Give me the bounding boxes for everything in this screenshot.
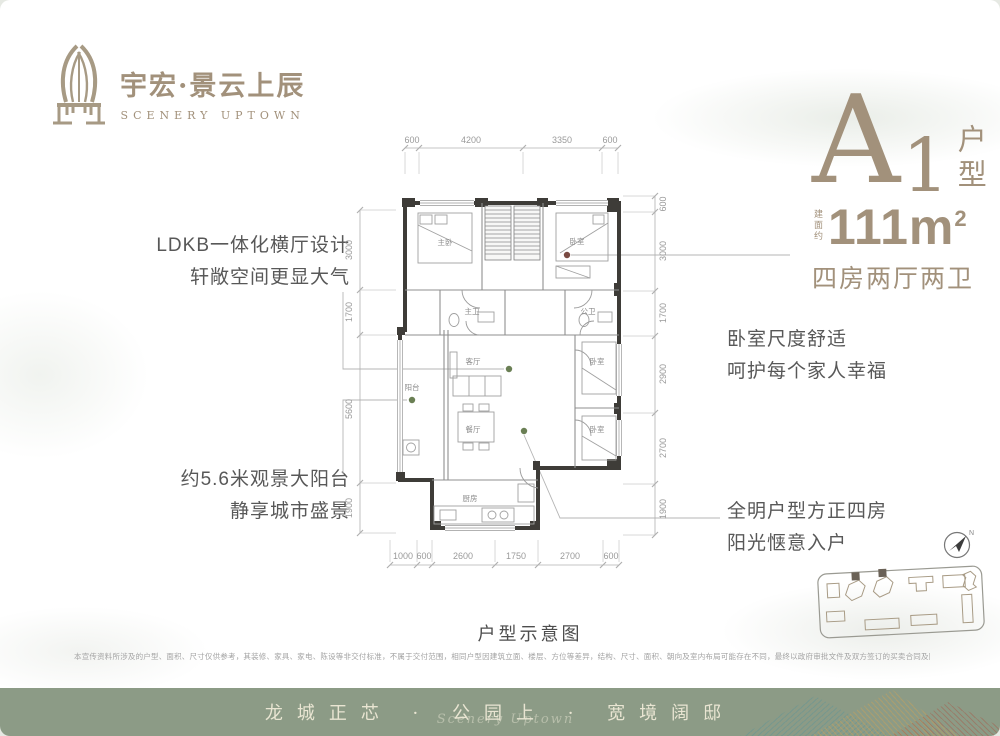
building-icon (50, 42, 108, 128)
svg-text:1750: 1750 (506, 551, 526, 561)
svg-text:3350: 3350 (552, 135, 572, 145)
footer-band: 龙城正芯 · 公园上 · 宽境阔邸 Scenery Uptown (0, 688, 1000, 736)
brand-name: 宇宏·景云上辰 (120, 64, 305, 103)
unit-suffix: 户型 (955, 124, 984, 194)
svg-text:1700: 1700 (658, 303, 668, 323)
unit-number: 1 (902, 136, 949, 197)
brand-subtitle: SCENERY UPTOWN (120, 109, 305, 122)
flyer-page: 宇宏·景云上辰 SCENERY UPTOWN A 1 户型 建面约 111m2 … (0, 0, 1000, 736)
floorplan-caption: 户型示意图 (430, 620, 630, 646)
svg-text:600: 600 (658, 196, 668, 211)
footer-signature: Scenery Uptown (437, 712, 574, 727)
svg-text:2600: 2600 (453, 551, 473, 561)
svg-text:1000: 1000 (393, 551, 413, 561)
svg-text:600: 600 (416, 551, 431, 561)
stair-core (485, 206, 540, 260)
svg-text:2900: 2900 (658, 364, 668, 384)
svg-text:2700: 2700 (658, 438, 668, 458)
svg-text:4200: 4200 (461, 135, 481, 145)
svg-text:600: 600 (603, 551, 618, 561)
svg-text:600: 600 (602, 135, 617, 145)
room-label-bedroom: 卧室 (590, 424, 605, 434)
svg-text:3000: 3000 (658, 241, 668, 261)
svg-text:600: 600 (404, 135, 419, 145)
room-label-bedroom: 卧室 (570, 236, 585, 246)
svg-text:N: N (969, 530, 974, 537)
room-label-dining: 餐厅 (466, 425, 481, 434)
svg-text:1900: 1900 (658, 499, 668, 519)
doors (462, 290, 594, 488)
disclaimer-text: 本宣传资料所涉及的户型、面积、尺寸仅供参考，其装修、家具、家电、陈设等非交付标准… (74, 651, 930, 662)
room-label-kitchen: 厨房 (463, 493, 478, 503)
decor-tint (0, 290, 150, 460)
room-label-master-bath: 主卫 (465, 306, 480, 316)
room-label-balcony: 阳台 (405, 382, 420, 392)
svg-text:1900: 1900 (344, 498, 354, 518)
room-label-master: 主卧 (438, 237, 453, 247)
svg-text:5600: 5600 (344, 399, 354, 419)
brand-logo: 宇宏·景云上辰 SCENERY UPTOWN (50, 42, 305, 128)
annotation-dots (409, 252, 570, 434)
room-label-living: 客厅 (466, 356, 481, 366)
room-label-bath: 公卫 (581, 307, 596, 316)
area-sup: 2 (954, 206, 967, 231)
svg-text:2700: 2700 (560, 551, 580, 561)
svg-text:3000: 3000 (344, 240, 354, 260)
site-keyplan (806, 556, 996, 648)
floorplan-drawing: 600 4200 3350 600 1000 600 2600 1750 270… (140, 128, 860, 628)
room-label-bedroom: 卧室 (590, 356, 605, 366)
svg-text:1700: 1700 (344, 302, 354, 322)
